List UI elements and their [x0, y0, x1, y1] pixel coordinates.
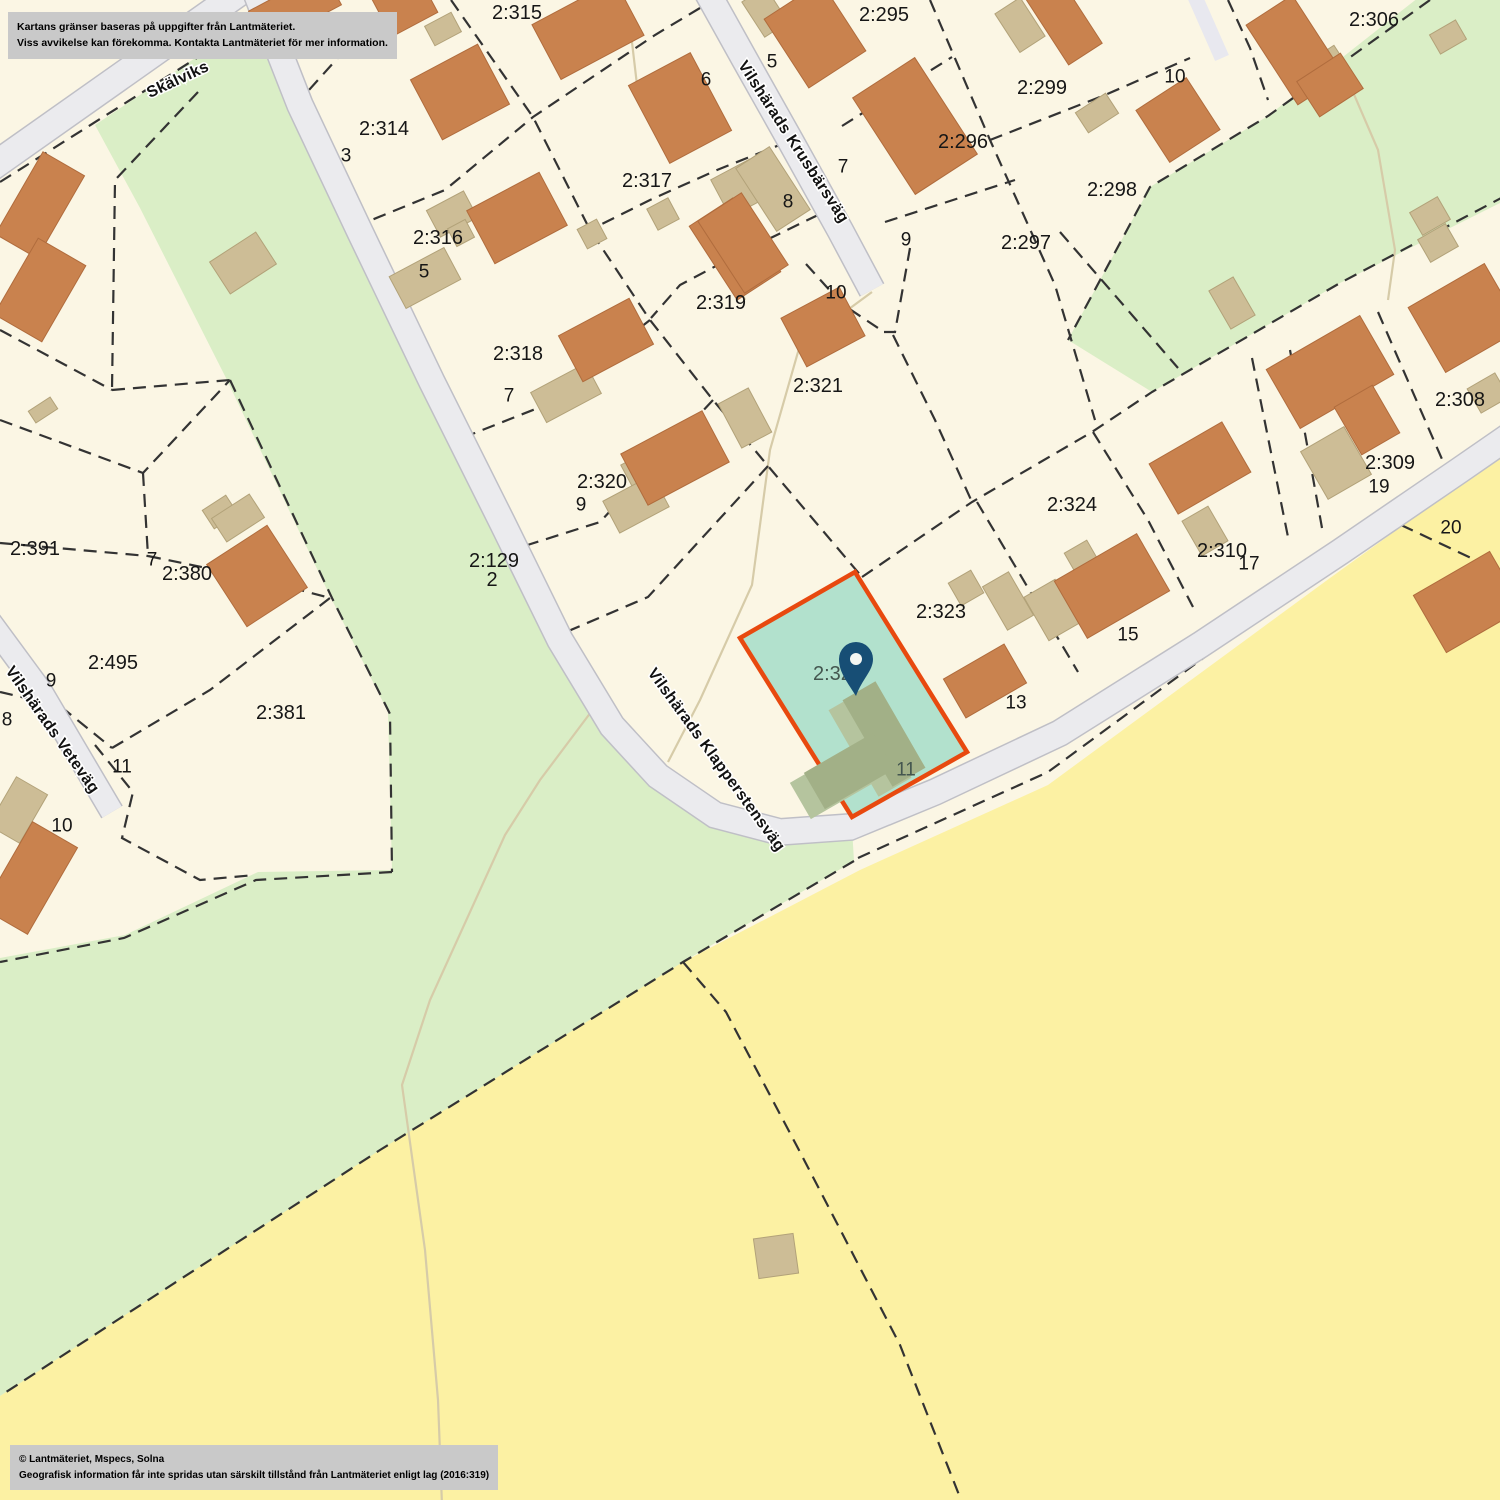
house-number-label: 3	[341, 146, 352, 167]
parcel-label: 2:299	[1017, 77, 1067, 99]
house-number-label: 9	[576, 495, 587, 516]
house-number-label: 8	[2, 710, 13, 731]
house-number-label: 10	[1164, 67, 1185, 88]
house-number-label: 9	[46, 671, 57, 692]
house-number-label: 9	[901, 230, 912, 251]
location-pin-hole	[850, 653, 862, 665]
parcel-label: 2:315	[492, 2, 542, 24]
parcel-label: 2:318	[493, 343, 543, 365]
house-number-label: 8	[783, 192, 794, 213]
parcel-label: 2:391	[10, 538, 60, 560]
parcel-label: 2:295	[859, 4, 909, 26]
parcel-label: 2:308	[1435, 389, 1485, 411]
parcel-label: 2:309	[1365, 452, 1415, 474]
house-number-label: 6	[701, 70, 712, 91]
parcel-label: 2:381	[256, 702, 306, 724]
highlighted-house-number: 11	[896, 760, 916, 781]
house-number-label: 7	[147, 550, 158, 571]
disclaimer-line1: Kartans gränser baseras på uppgifter frå…	[17, 19, 388, 35]
copyright-line2: Geografisk information får inte spridas …	[19, 1468, 489, 1484]
house-number-label: 10	[51, 816, 72, 837]
house-number-label: 11	[112, 757, 132, 778]
house-number-label: 13	[1005, 693, 1026, 714]
parcel-label: 2:319	[696, 292, 746, 314]
map-disclaimer: Kartans gränser baseras på uppgifter frå…	[8, 12, 397, 59]
parcel-label: 2:495	[88, 652, 138, 674]
disclaimer-line2: Viss avvikelse kan förekomma. Kontakta L…	[17, 35, 388, 51]
map-page: { "notice": { "line1": "Kartans gränser …	[0, 0, 1500, 1500]
parcel-label: 2:297	[1001, 232, 1051, 254]
house-number-label: 15	[1117, 625, 1138, 646]
copyright-line1: © Lantmäteriet, Mspecs, Solna	[19, 1452, 489, 1468]
map-canvas[interactable]: 2:3122:3152:3142:3162:3172:3182:3192:320…	[0, 0, 1500, 1500]
house-number-label: 17	[1238, 554, 1259, 575]
map-copyright: © Lantmäteriet, Mspecs, Solna Geografisk…	[10, 1445, 498, 1490]
house-number-label: 5	[767, 52, 778, 73]
parcel-label: 2:298	[1087, 179, 1137, 201]
parcel-label: 2:296	[938, 131, 988, 153]
parcel-label: 2:380	[162, 563, 212, 585]
house-number-label: 10	[825, 283, 846, 304]
building	[753, 1233, 798, 1278]
parcel-label: 2:321	[793, 375, 843, 397]
parcel-label: 2:320	[577, 471, 627, 493]
parcel-label: 2	[486, 569, 497, 591]
house-number-label: 19	[1368, 477, 1389, 498]
parcel-label: 2:317	[622, 170, 672, 192]
house-number-label: 7	[504, 386, 515, 407]
parcel-label: 2:324	[1047, 494, 1097, 516]
house-number-label: 5	[419, 262, 430, 283]
house-number-label: 7	[838, 157, 849, 178]
parcel-label: 2:306	[1349, 9, 1399, 31]
house-number-label: 20	[1440, 518, 1461, 539]
parcel-label: 2:323	[916, 601, 966, 623]
parcel-label: 2:314	[359, 118, 409, 140]
parcel-label: 2:316	[413, 227, 463, 249]
